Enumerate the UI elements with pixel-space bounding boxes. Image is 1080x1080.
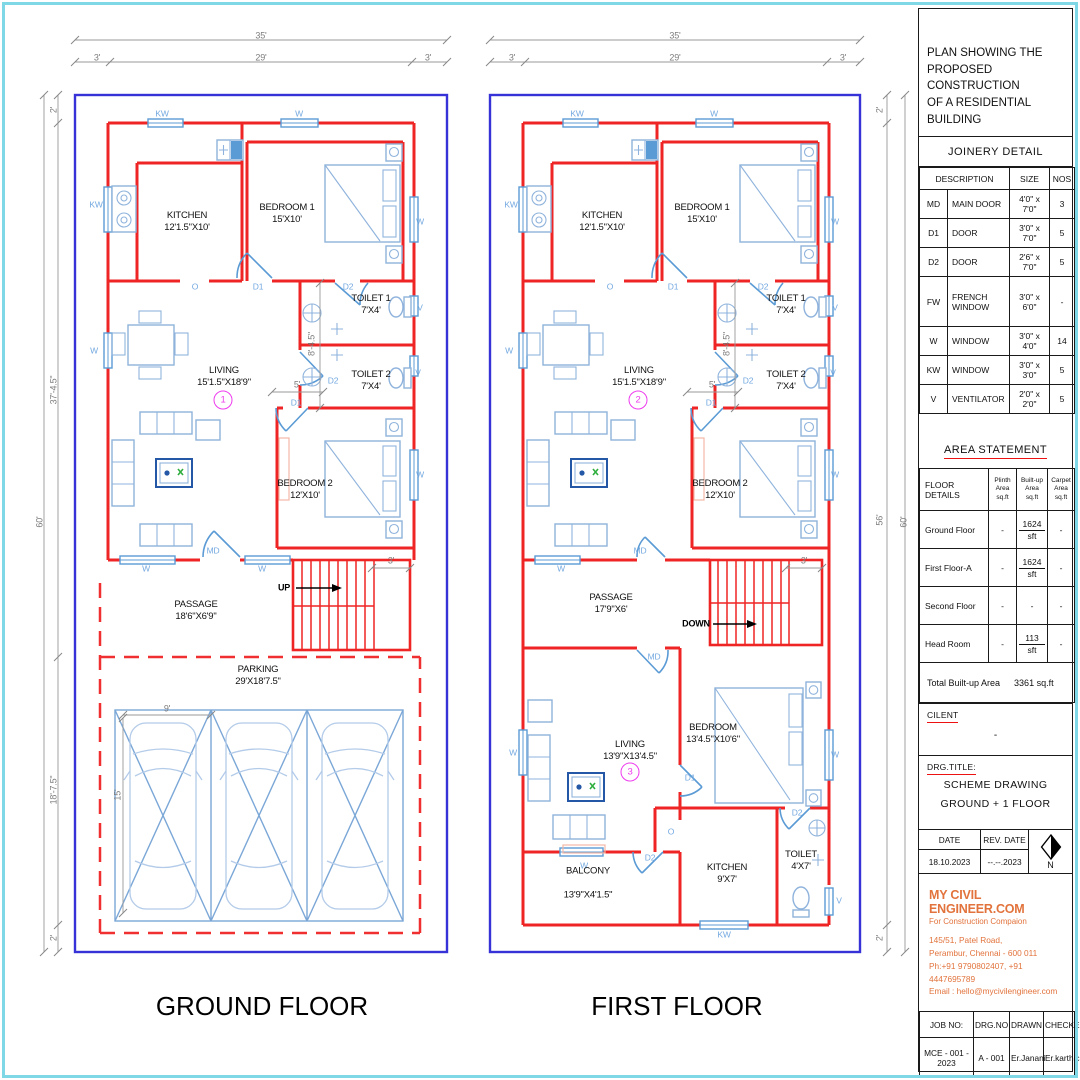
title-block: PLAN SHOWING THE PROPOSED CONSTRUCTION O… (918, 8, 1073, 1072)
joinery-header-nos: NOS (1050, 168, 1075, 190)
dimension-label: 35' (669, 30, 680, 41)
drawing-title-section: DRG.TITLE: SCHEME DRAWING GROUND + 1 FLO… (919, 755, 1072, 829)
opening-label: W (505, 346, 513, 357)
room-label-living: LIVING 15'1.5"X18'9" (612, 365, 666, 389)
opening-label: D2 (792, 808, 802, 819)
room-label-balcony: BALCONY 13'9"X4'1.5" (564, 859, 613, 907)
drawn-value: Er.Janani (1010, 1038, 1044, 1078)
client-section: CILENT - (919, 703, 1072, 755)
joinery-row: KWWINDOW3'0" x 3'0"5 (920, 356, 1075, 385)
rev-date-value: --.--.2023 (981, 850, 1028, 873)
date-value: 18.10.2023 (919, 850, 980, 873)
drg-title-line1: SCHEME DRAWING (927, 779, 1064, 791)
checked-label: CHECKED (1044, 1012, 1075, 1038)
company-address-line: Perambur, Chennai - 600 011 (929, 947, 1064, 960)
company-email: Email : hello@mycivilengineer.com (929, 985, 1064, 998)
opening-label: KW (570, 109, 583, 120)
opening-label: W (710, 109, 718, 120)
company-tagline: For Construction Compaion (929, 917, 1064, 926)
dimension-label: 3' (801, 555, 807, 566)
drawing-sheet: 35'3'29'3'60'2'37'-4.5"18'-7.5"2'8'-4.5"… (0, 0, 1080, 1080)
opening-label: V (830, 368, 835, 379)
room-label-bedroom: BEDROOM 13'4.5"X10'6" (686, 722, 740, 746)
company-phone: Ph:+91 9790802407, +91 4447695789 (929, 960, 1064, 986)
opening-label: D2 (743, 376, 753, 387)
opening-label: MD (634, 546, 647, 557)
plan-number-badge: 2 (629, 391, 648, 410)
opening-label: O (668, 827, 674, 838)
north-arrow-icon (1039, 834, 1063, 860)
date-section: DATE 18.10.2023 REV. DATE --.--.2023 N (919, 829, 1072, 873)
opening-label: W (831, 217, 839, 228)
client-value: - (927, 730, 1064, 741)
dimension-label: 2' (874, 935, 885, 941)
opening-label: KW (717, 930, 730, 941)
area-row: Ground Floor - 1624sft - (920, 511, 1075, 549)
drg-title-line2: GROUND + 1 FLOOR (927, 798, 1064, 810)
plan-number-badge: 3 (621, 763, 640, 782)
opening-label: V (836, 896, 841, 907)
opening-label: KW (504, 200, 517, 211)
joinery-row: D1DOOR3'0" x 7'0"5 (920, 219, 1075, 248)
opening-label: W (831, 470, 839, 481)
checked-value: Er.karthic (1044, 1038, 1075, 1078)
north-label: N (1047, 860, 1054, 870)
drg-title-label: DRG.TITLE: (927, 762, 976, 775)
area-statement-table: FLOOR DETAILS Plinth Area sq.ft Built-up… (919, 468, 1075, 703)
opening-label: W (831, 750, 839, 761)
client-label: CILENT (927, 710, 958, 723)
opening-label: D1 (706, 398, 716, 409)
area-row: Head Room - 113sft - (920, 625, 1075, 663)
joinery-row: WWINDOW3'0" x 4'0"14 (920, 327, 1075, 356)
drawn-label: DRAWN (1010, 1012, 1044, 1038)
footer-table: JOB NO: DRG.NO DRAWN CHECKED MCE - 001 -… (919, 1011, 1075, 1078)
dimension-label: 5' (709, 379, 715, 390)
joinery-row: MDMAIN DOOR4'0" x 7'0"3 (920, 190, 1075, 219)
room-label-toilet1: TOILET 1 7'X4' (766, 293, 805, 317)
room-label-bedroom1: BEDROOM 1 15'X10' (674, 202, 729, 226)
job-no-label: JOB NO: (920, 1012, 974, 1038)
room-label-toilet-lower: TOILET 4'X7' (785, 849, 817, 873)
joinery-row: FWFRENCH WINDOW3'0" x 6'0"- (920, 277, 1075, 327)
joinery-detail-title: JOINERY DETAIL (919, 137, 1072, 167)
opening-label: W (509, 748, 517, 759)
opening-label: D2 (645, 853, 655, 864)
opening-label: O (607, 282, 613, 293)
dimension-label: 3' (840, 52, 846, 63)
job-no-value: MCE - 001 - 2023 (920, 1038, 974, 1078)
plan-label: DOWN (682, 618, 710, 629)
drg-no-label: DRG.NO (974, 1012, 1010, 1038)
opening-label: D1 (685, 773, 695, 784)
dimension-label: 8'-4.5" (721, 332, 732, 356)
room-label-toilet2: TOILET 2 7'X4' (766, 369, 805, 393)
date-label: DATE (919, 830, 980, 850)
joinery-row: VVENTILATOR2'0" x 2'0"5 (920, 385, 1075, 414)
opening-label: D1 (668, 282, 678, 293)
dimension-label: 2' (874, 107, 885, 113)
room-label-living-lower: LIVING 13'9"X13'4.5" (603, 739, 657, 763)
opening-label: V (832, 303, 837, 314)
company-section: MY CIVIL ENGINEER.COM For Construction C… (919, 873, 1072, 1011)
rev-date-label: REV. DATE (981, 830, 1028, 850)
company-address-line: 145/51, Patel Road, (929, 934, 1064, 947)
joinery-row: D2DOOR2'6" x 7'0"5 (920, 248, 1075, 277)
dimension-label: 29' (669, 52, 680, 63)
dimension-label: 60' (898, 516, 909, 527)
opening-label: D2 (758, 282, 768, 293)
floor-title-first: FIRST FLOOR (591, 990, 762, 1023)
room-label-passage: PASSAGE 17'9"X6' (589, 592, 632, 616)
opening-label: W (557, 564, 565, 575)
room-label-bedroom2: BEDROOM 2 12'X10' (692, 478, 747, 502)
joinery-table: DESCRIPTION SIZE NOS MDMAIN DOOR4'0" x 7… (919, 167, 1075, 414)
area-total-row: Total Built-up Area3361 sq.ft (920, 663, 1075, 703)
opening-label: MD (648, 652, 661, 663)
drg-no-value: A - 001 (974, 1038, 1010, 1078)
area-row: First Floor-A - 1624sft - (920, 549, 1075, 587)
room-label-kitchen-lower: KITCHEN 9'X7' (707, 862, 747, 886)
joinery-header-size: SIZE (1010, 168, 1050, 190)
area-statement-title: AREA STATEMENT (944, 444, 1047, 459)
company-name: MY CIVIL ENGINEER.COM (929, 888, 1064, 916)
area-row: Second Floor - - - (920, 587, 1075, 625)
room-label-kitchen: KITCHEN 12'1.5"X10' (579, 210, 624, 234)
joinery-header-description: DESCRIPTION (920, 168, 1010, 190)
sheet-title: PLAN SHOWING THE PROPOSED CONSTRUCTION O… (919, 9, 1072, 137)
dimension-label: 56' (874, 514, 885, 525)
dimension-label: 3' (509, 52, 515, 63)
